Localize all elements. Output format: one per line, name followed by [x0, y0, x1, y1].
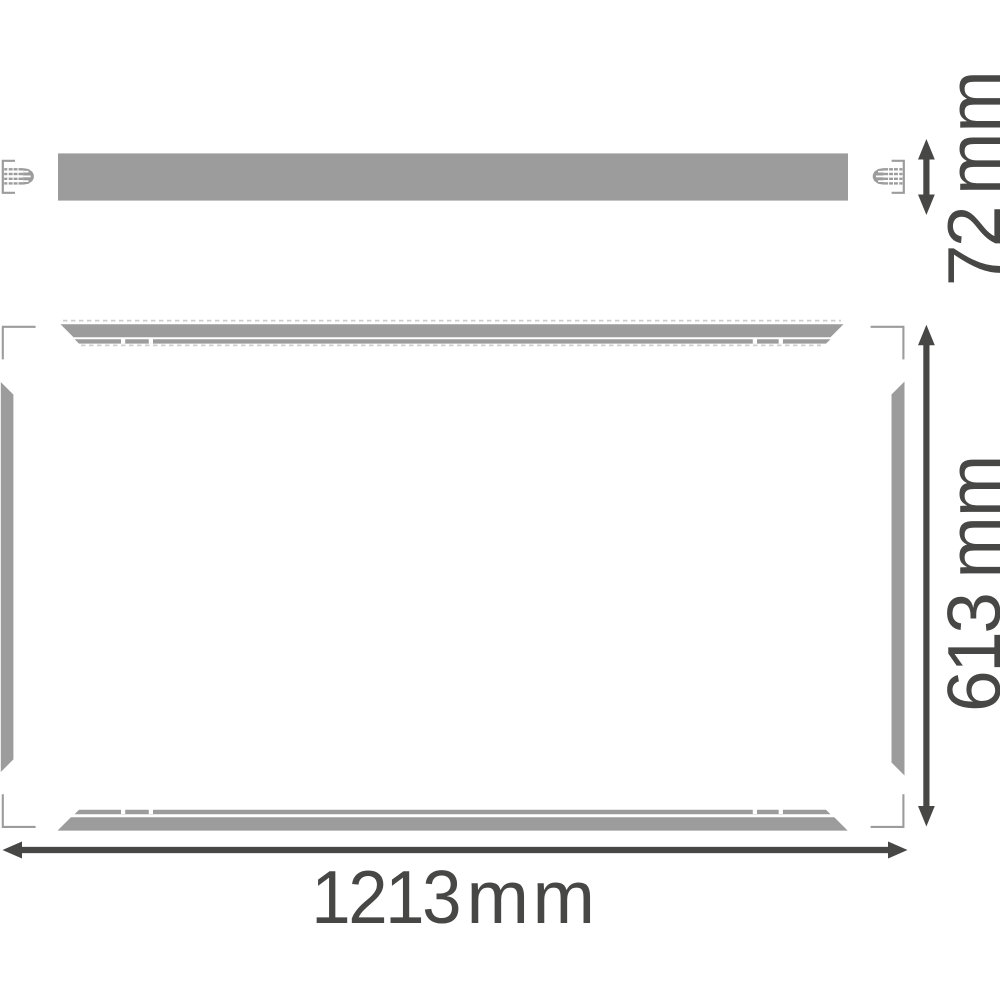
svg-text:72mm: 72mm [932, 70, 1000, 286]
svg-text:613mm: 613mm [932, 456, 1000, 712]
svg-text:mm: mm [467, 855, 599, 939]
svg-text:1213: 1213 [311, 856, 459, 939]
